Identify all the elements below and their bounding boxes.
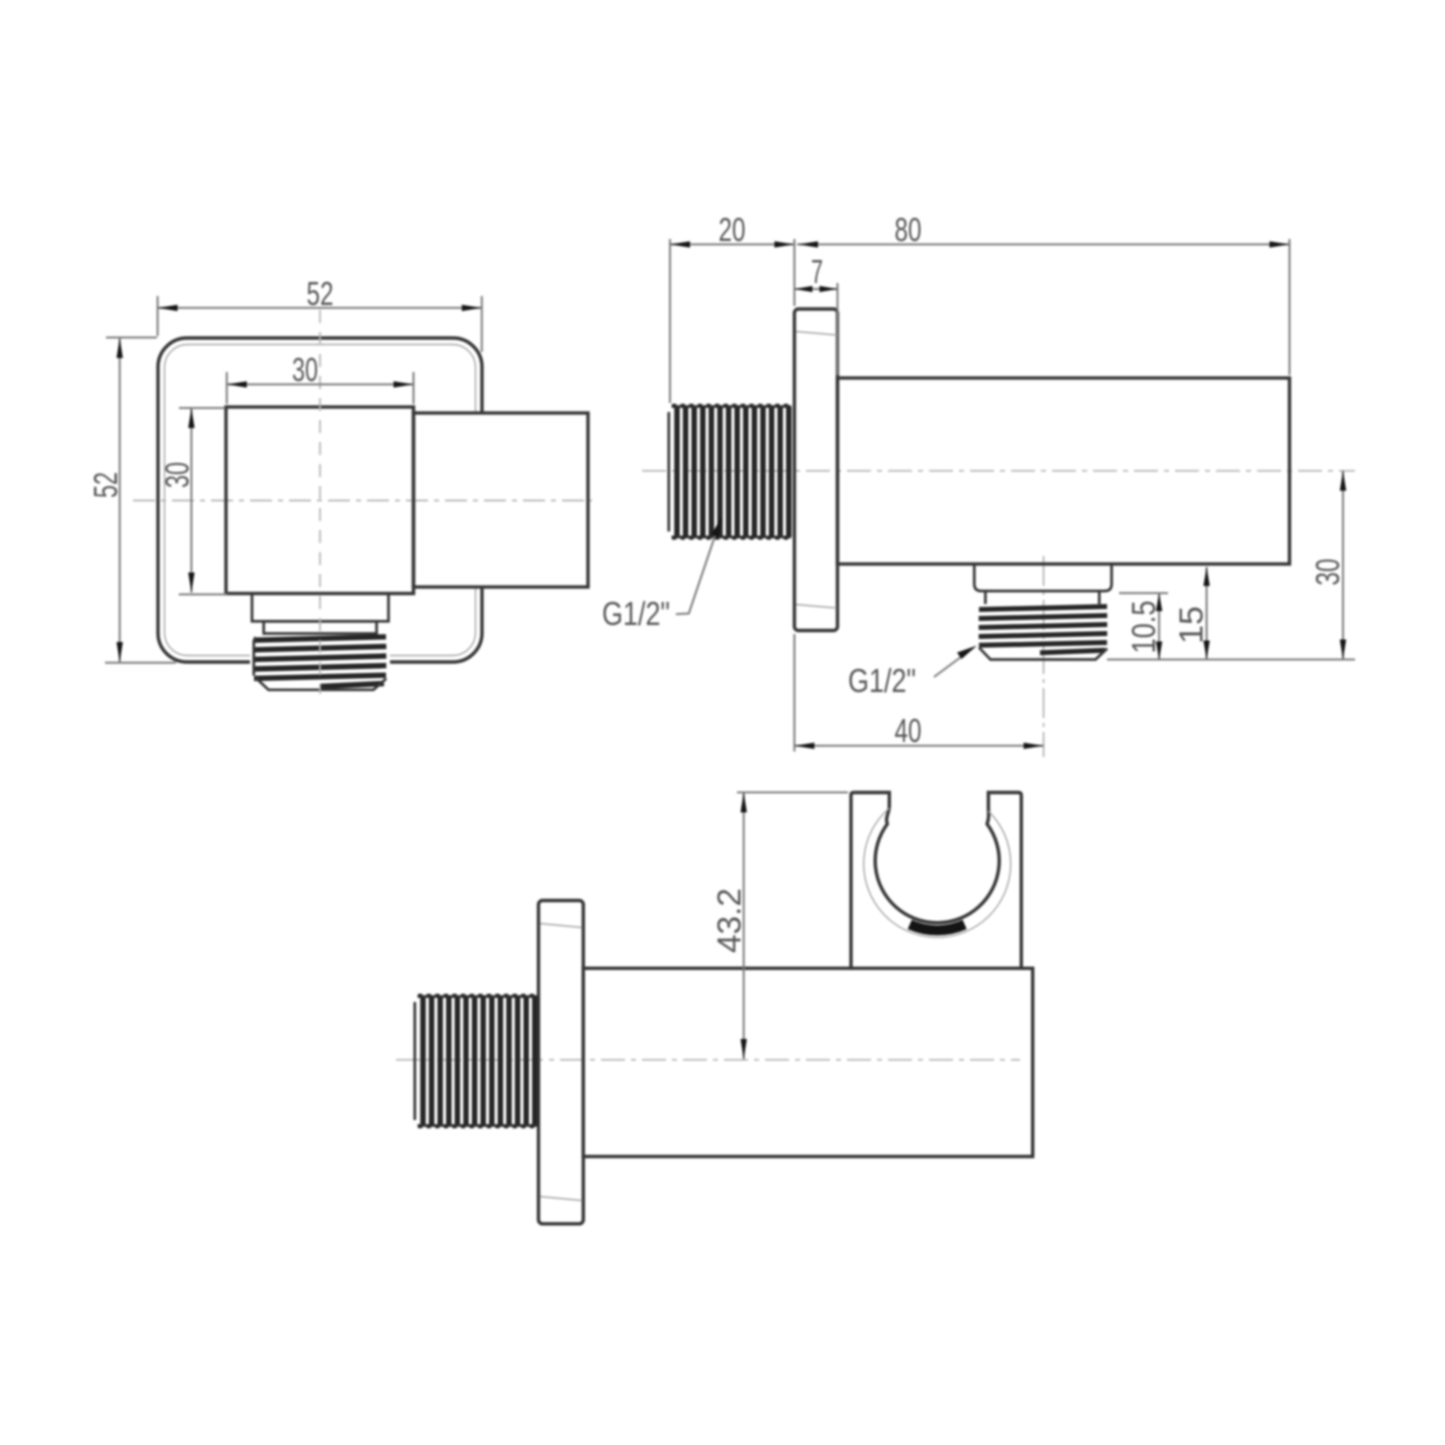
svg-text:30: 30 xyxy=(1309,559,1346,586)
svg-text:G1/2": G1/2" xyxy=(848,662,916,699)
svg-text:30: 30 xyxy=(159,462,196,488)
svg-text:52: 52 xyxy=(307,275,334,312)
svg-text:43.2: 43.2 xyxy=(711,888,748,953)
svg-text:15: 15 xyxy=(1173,606,1210,644)
svg-text:G1/2": G1/2" xyxy=(602,595,670,632)
svg-text:20: 20 xyxy=(719,211,746,248)
svg-text:7: 7 xyxy=(811,253,823,290)
svg-text:52: 52 xyxy=(87,472,124,498)
svg-text:10.5: 10.5 xyxy=(1125,601,1162,654)
svg-text:40: 40 xyxy=(895,712,922,749)
svg-text:30: 30 xyxy=(292,351,318,388)
svg-text:80: 80 xyxy=(895,211,922,248)
